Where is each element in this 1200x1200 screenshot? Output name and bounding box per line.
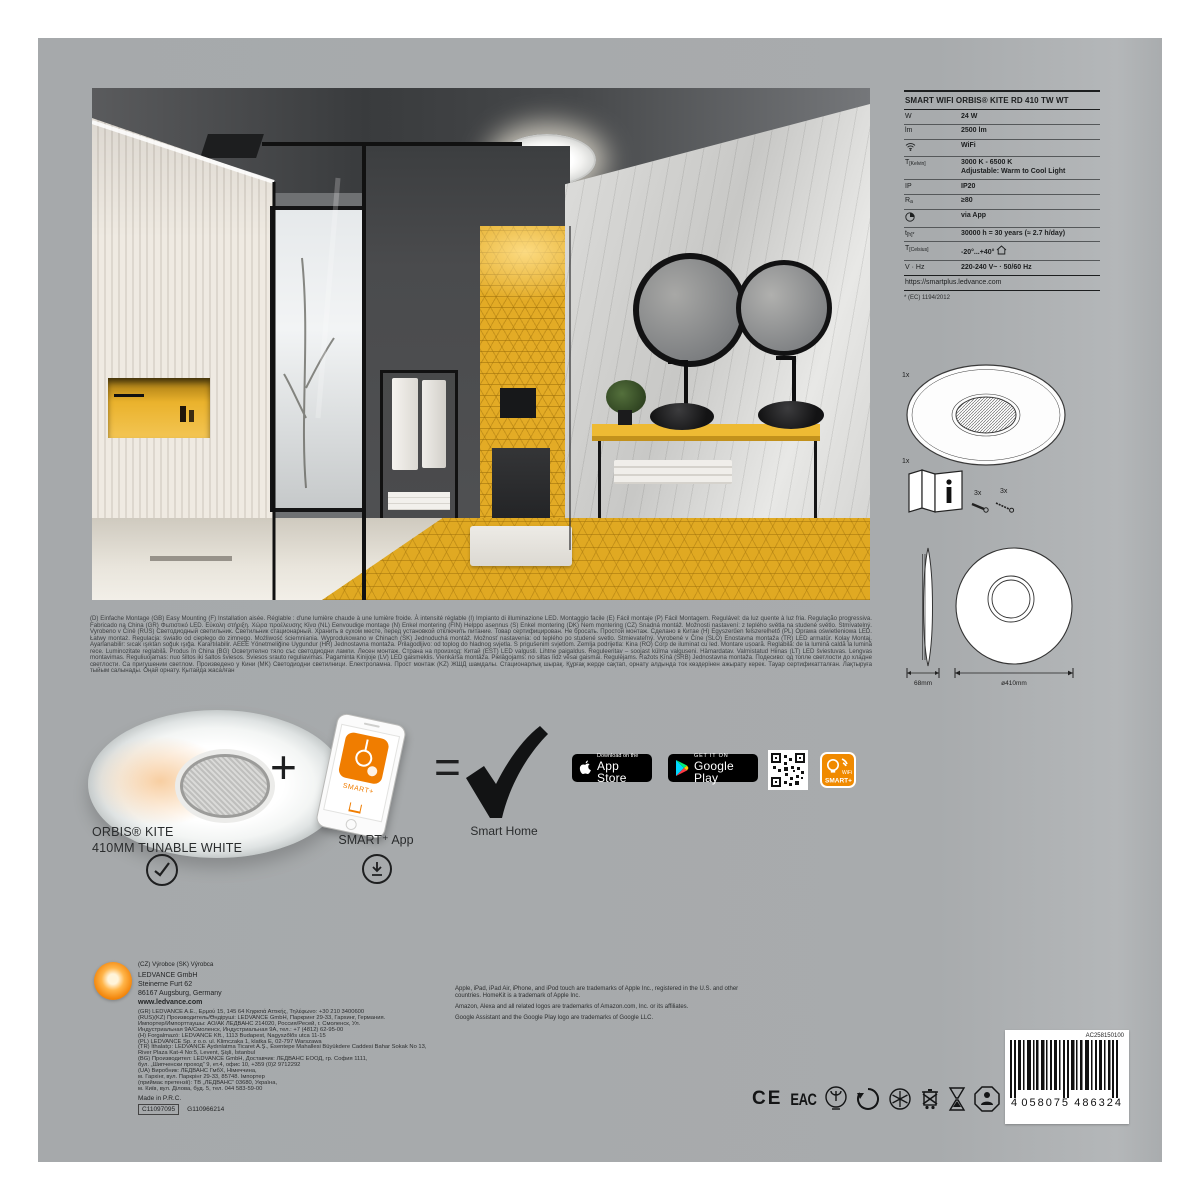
spec-value: IP20 [961, 183, 975, 192]
eac-mark: EAC [790, 1090, 816, 1109]
product-name-line1: ORBIS® KITE [92, 824, 242, 840]
barcode-digits-right: 486324 [1074, 1097, 1123, 1109]
spec-key: V · Hz [905, 264, 961, 271]
house-icon [996, 245, 1007, 255]
height-dim-label: 68mm [898, 680, 948, 687]
spec-row-ip: IP IP20 [904, 180, 1100, 195]
phone-screen-logo [348, 802, 362, 813]
phone-screen: SMART+ [323, 724, 400, 823]
product-photo-center [180, 754, 270, 818]
plus-sign: + [270, 740, 297, 794]
phone-speaker [364, 722, 380, 727]
package-back-panel: SMART WIFI ORBIS® KITE RD 410 TW WT W 24… [38, 38, 1162, 1162]
play-icon [675, 760, 689, 776]
multilanguage-text: (D) Einfache Montage (GB) Easy Mounting … [90, 616, 872, 675]
barcode-digits: 4 058075 486324 [1010, 1097, 1124, 1109]
spec-row-celsius: T[Celsius] -20°...+40° [904, 242, 1100, 261]
barcode-digit-lead: 4 [1011, 1097, 1017, 1109]
spec-key: W [905, 113, 961, 120]
installer-octagon-icon [974, 1086, 1000, 1112]
ce-mark: CE [752, 1088, 782, 1110]
apple-icon [579, 760, 592, 776]
manufacturer-city: 86167 Augsburg, Germany [138, 989, 222, 998]
manufacturer-name: LEDVANCE GmbH [138, 971, 222, 980]
spec-key: lm [905, 127, 961, 134]
distributor-addresses-line: м. Київ, вул. Ділова, буд. 5, тел. 044 5… [138, 1087, 468, 1093]
wall-plugs-icon [994, 498, 1018, 514]
manual-qty-label: 1x [902, 458, 909, 465]
barcode-label: AC258150100 4 058075 486324 [1005, 1030, 1129, 1124]
spec-website: https://smartplus.ledvance.com [904, 276, 1100, 291]
spec-key: t[h]* [905, 230, 961, 238]
dim-icon [905, 212, 961, 224]
spec-value: 24 W [961, 113, 977, 122]
phone-home-button [345, 818, 358, 831]
manual-icon [906, 468, 966, 514]
origin-line: (CZ) Výrobce (SK) Výrobca [138, 960, 222, 969]
spec-footnote: * (EC) 1194/2012 [904, 295, 950, 301]
manufacturer-street: Steinerne Furt 62 [138, 980, 222, 989]
google-play-badge: GET IT ON Google Play [668, 754, 758, 782]
spec-row-dim: via App [904, 210, 1100, 228]
spec-table: SMART WIFI ORBIS® KITE RD 410 TW WT W 24… [904, 90, 1100, 291]
trademark-legal-text-line: Amazon, Alexa and all related logos are … [455, 1004, 755, 1011]
code-boxed: C11097095 [138, 1104, 179, 1115]
ledvance-logo [94, 962, 132, 1000]
spec-title: SMART WIFI ORBIS® KITE RD 410 TW WT [904, 90, 1100, 110]
ua-conformity-icon [824, 1086, 848, 1112]
hourglass-icon [948, 1086, 966, 1112]
spec-value: WiFi [961, 142, 976, 151]
rostest-icon [888, 1087, 912, 1111]
side-dim-arrows [906, 668, 940, 678]
spec-row-lumen: lm 2500 lm [904, 125, 1100, 140]
manufacturer-block: (CZ) Výrobce (SK) Výrobca LEDVANCE GmbH … [138, 960, 222, 1007]
diameter-dim-label: ø410mm [954, 680, 1074, 687]
smart-home-checkmark [460, 726, 548, 818]
spec-value: via App [961, 212, 986, 221]
smartplus-wifi-badge: WiFi SMART+ [820, 752, 856, 788]
wifi-icon [905, 142, 961, 153]
spec-value: -20°...+40° [961, 245, 1007, 258]
spec-key: T[Celsius] [905, 245, 961, 253]
page: SMART WIFI ORBIS® KITE RD 410 TW WT W 24… [0, 0, 1200, 1200]
equals-sign: = [434, 740, 461, 794]
google-play-line2: Google Play [694, 760, 751, 784]
lamp-line-drawing [905, 363, 1067, 467]
screws-qty-label: 3x [974, 490, 981, 497]
app-store-badge: Download on the App Store [572, 754, 652, 782]
spec-row-watt: W 24 W [904, 110, 1100, 125]
side-view-drawing [908, 546, 938, 668]
trademark-legal-text: Apple, iPad, iPad Air, iPhone, and iPod … [455, 986, 755, 1026]
made-in-label: Made in P.R.C. [138, 1095, 181, 1102]
spec-row-cri: Ra ≥80 [904, 195, 1100, 210]
smart-home-label: Smart Home [454, 824, 554, 838]
code-plain: G110966214 [187, 1106, 224, 1113]
barcode-top-code: AC258150100 [1010, 1033, 1124, 1039]
spec-row-kelvin: T[Kelvin] 3000 K - 6500 KAdjustable: War… [904, 157, 1100, 181]
dia-dim-arrows [954, 668, 1074, 678]
smartphone-image: SMART+ [315, 712, 408, 840]
app-screen-graphic [337, 731, 390, 785]
product-check-icon [146, 854, 178, 886]
spec-key: IP [905, 183, 961, 190]
spec-value: 2500 lm [961, 127, 987, 136]
download-icon [362, 854, 392, 884]
barcode-digits-left: 058075 [1021, 1097, 1070, 1109]
distributor-addresses: (GR) LEDVANCE A.E., Ερμού 15, 145 64 Κηφ… [138, 1010, 468, 1093]
spec-value: 3000 K - 6500 KAdjustable: Warm to Cool … [961, 159, 1065, 177]
product-codes: C11097095G110966214 [138, 1106, 224, 1113]
screws-icon [970, 500, 992, 514]
top-view-drawing [954, 546, 1074, 666]
photo-detail-overlay [92, 88, 870, 600]
spec-row-voltage: V · Hz 220-240 V~ · 50/60 Hz [904, 261, 1100, 276]
recycle-icon [856, 1087, 880, 1111]
weee-bin-icon [920, 1086, 940, 1112]
spec-row-lifetime: t[h]* 30000 h = 30 years (≈ 2.7 h/day) [904, 228, 1100, 243]
spec-value: 220-240 V~ · 50/60 Hz [961, 264, 1032, 273]
barcode-bars [1010, 1040, 1124, 1098]
trademark-legal-text-line: Google Assistant and the Google Play log… [455, 1015, 755, 1022]
plugs-qty-label: 3x [1000, 488, 1007, 495]
app-store-line2: App Store [597, 760, 645, 784]
svg-text:WiFi: WiFi [842, 770, 852, 776]
app-label: SMART⁺ App [316, 832, 436, 847]
qr-code [768, 750, 808, 790]
spec-row-wifi: WiFi [904, 140, 1100, 157]
svg-text:SMART+: SMART+ [825, 778, 852, 785]
spec-key: Ra [905, 197, 961, 205]
spec-value: ≥80 [961, 197, 973, 206]
manufacturer-website: www.ledvance.com [138, 998, 222, 1007]
trademark-legal-text-line: Apple, iPad, iPad Air, iPhone, and iPod … [455, 986, 755, 1000]
spec-value: 30000 h = 30 years (≈ 2.7 h/day) [961, 230, 1065, 239]
bathroom-photo [92, 88, 870, 600]
spec-key: T[Kelvin] [905, 159, 961, 167]
product-name: ORBIS® KITE 410MM TUNABLE WHITE [92, 824, 242, 857]
